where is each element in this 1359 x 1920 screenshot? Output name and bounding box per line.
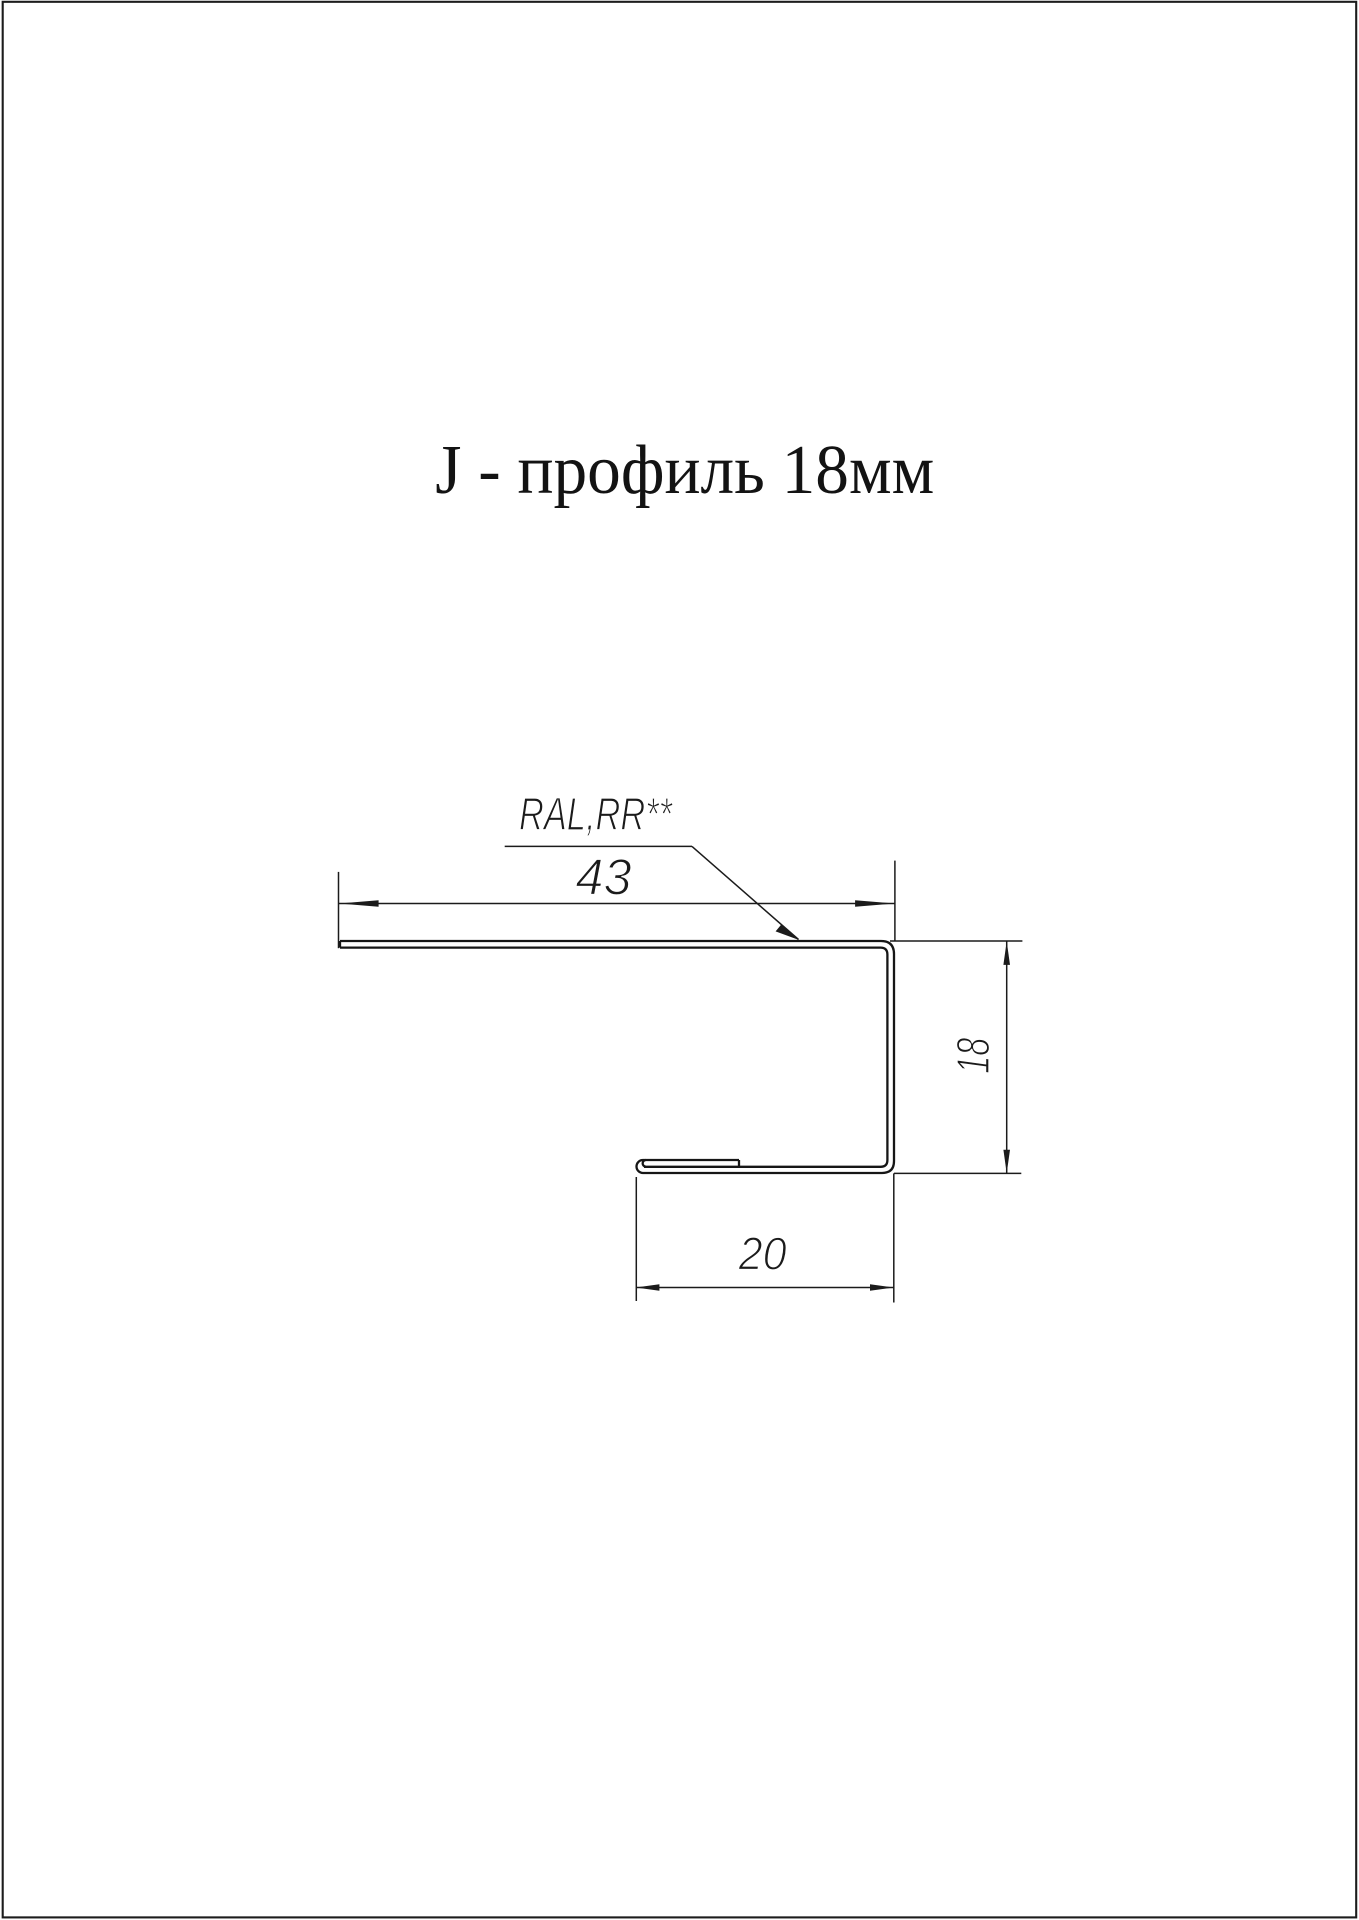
svg-text:20: 20 [738, 1228, 787, 1280]
svg-text:J - профиль 18мм: J - профиль 18мм [435, 432, 934, 509]
svg-text:RAL,RR**: RAL,RR** [519, 788, 674, 840]
svg-text:43: 43 [576, 849, 632, 906]
svg-text:18: 18 [947, 1038, 999, 1074]
